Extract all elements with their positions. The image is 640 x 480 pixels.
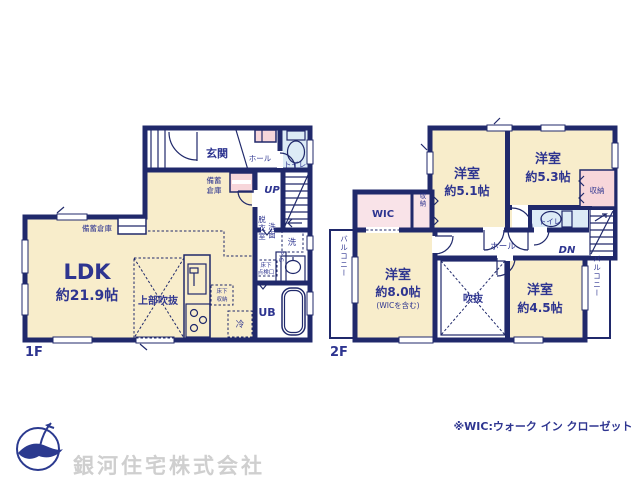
- bedroom51-door-gap: [483, 227, 504, 233]
- bedroom45-door-gap: [497, 255, 513, 261]
- label-floor2: 2F: [330, 345, 348, 360]
- floor1-plan: 玄関 ホール トイレ UP 備蓄 倉庫 備蓄倉庫 LDK 約21.9帖 上部吹抜…: [22, 128, 313, 360]
- label-bath: UB: [258, 306, 275, 319]
- label-genkan: 玄関: [206, 146, 228, 160]
- label-ldk-size: 約21.9帖: [56, 287, 119, 304]
- label-fridge: 冷: [236, 319, 245, 330]
- label-balcony-left: バルコニー: [339, 234, 348, 277]
- label-bedroom45: 洋室: [527, 282, 553, 298]
- label-void: 吹抜: [463, 292, 484, 305]
- label-dressing-room: 脱衣室: [257, 214, 266, 241]
- floorplan-image: 玄関 ホール トイレ UP 備蓄 倉庫 備蓄倉庫 LDK 約21.9帖 上部吹抜…: [0, 0, 640, 480]
- hall-2f: [435, 230, 615, 258]
- label-storage-upper-1: 備蓄: [207, 175, 222, 185]
- label-underfloor-hatch-2: 点検口: [258, 268, 275, 276]
- company-logo-icon: [17, 423, 63, 470]
- label-bedroom51: 洋室: [454, 166, 480, 182]
- label-bedroom80-note: (WICを含む): [376, 300, 419, 310]
- label-balcony-right: バルコニー: [592, 254, 601, 297]
- label-bedroom53-size: 約5.3帖: [525, 169, 570, 184]
- label-toilet-2f: トイレ: [539, 217, 562, 226]
- label-dn: DN: [559, 245, 576, 256]
- shoe-cabinet: [255, 130, 276, 142]
- label-closet53: 収納: [590, 185, 605, 195]
- label-wic: WIC: [372, 209, 394, 220]
- label-hall-1f: ホール: [249, 154, 272, 163]
- casement-tick: [421, 144, 427, 150]
- pantry-closet-shelf: [232, 180, 251, 184]
- footer: ※WIC:ウォーク イン クローゼット 銀河住宅株式会社: [17, 419, 633, 478]
- floorplan-svg: 玄関 ホール トイレ UP 備蓄 倉庫 備蓄倉庫 LDK 約21.9帖 上部吹抜…: [0, 0, 640, 480]
- label-underfloor-hatch-1: 床下: [260, 261, 272, 269]
- label-washroom: 洗面: [267, 221, 276, 240]
- label-washer: 洗: [288, 237, 297, 248]
- label-storage-upper-2: 倉庫: [207, 185, 222, 195]
- bedroom80-door-gap: [432, 236, 438, 253]
- wic-note: ※WIC:ウォーク イン クローゼット: [453, 419, 632, 433]
- label-ldk: LDK: [63, 260, 111, 284]
- label-bedroom51-size: 約5.1帖: [444, 183, 489, 198]
- label-pipe-space: P.S: [277, 251, 285, 263]
- label-underfloor-storage-1: 床下: [216, 287, 228, 295]
- label-up: UP: [264, 185, 280, 196]
- casement-tick: [140, 344, 147, 350]
- company-name: 銀河住宅株式会社: [73, 454, 265, 478]
- floor2-plan: 洋室 約5.1帖 洋室 約5.3帖 収納 WIC 収納 トイレ DN ホール バ…: [330, 118, 618, 360]
- casement-tick: [57, 207, 64, 213]
- casement-tick: [494, 118, 500, 124]
- label-hall-2f: ホール: [490, 242, 516, 252]
- label-floor1: 1F: [25, 345, 43, 360]
- label-underfloor-storage-2: 収納: [216, 295, 228, 303]
- room-ldk: [25, 170, 255, 340]
- label-toilet-1f: トイレ: [284, 160, 307, 169]
- room-bedroom45: [508, 258, 586, 340]
- label-storage-left: 備蓄倉庫: [82, 223, 112, 233]
- label-bedroom53: 洋室: [535, 151, 561, 167]
- label-bedroom45-size: 約4.5帖: [517, 300, 562, 315]
- toilet2f-door-gap: [534, 227, 547, 233]
- label-closet-wic: 収納: [418, 192, 426, 208]
- label-bedroom80: 洋室: [385, 267, 411, 283]
- label-bedroom80-size: 約8.0帖: [375, 284, 420, 299]
- label-open-above: 上部吹抜: [138, 294, 179, 307]
